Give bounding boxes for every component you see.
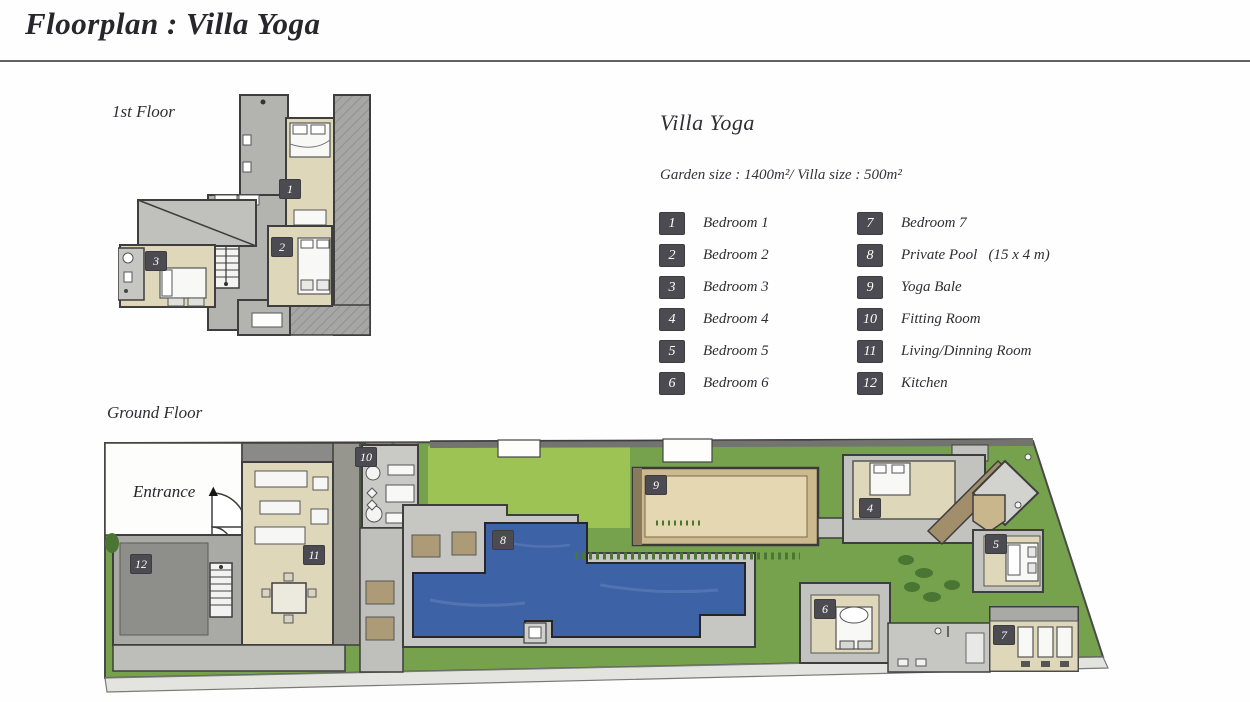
terrace [113,645,345,671]
legend-label: Bedroom 7 [901,215,967,232]
legend-badge: 5 [660,341,684,362]
room-badge-6: 6 [815,600,835,618]
entrance-text: Entrance [133,482,195,502]
side-table-icon [313,477,328,490]
page-title: Floorplan : Villa Yoga [25,6,321,42]
legend-item: 11Living/Dinning Room [858,341,1050,362]
legend-badge: 8 [858,245,882,266]
entrance-label: Entrance ▲ [133,482,221,502]
lounger-icon [366,581,394,604]
legend-column-1: 1Bedroom 1 2Bedroom 2 3Bedroom 3 4Bedroo… [660,213,820,394]
legend-item: 1Bedroom 1 [660,213,820,234]
room-badge-4: 4 [860,499,880,517]
window-icon [243,135,251,145]
side-deck [360,528,403,672]
bed-icon [1018,627,1033,657]
bench-icon [388,465,414,475]
lounger-icon [452,532,476,555]
size-line: Garden size : 1400m²/ Villa size : 500m² [660,167,1130,184]
ground-floor-label: Ground Floor [107,403,202,423]
wall-band [333,443,360,645]
legend-badge: 12 [858,373,882,394]
legend-label: Bedroom 1 [703,215,769,232]
shared-bathroom [888,623,990,672]
gate [663,439,712,462]
lamp-icon [261,100,266,105]
legend-label: Kitchen [901,375,948,392]
sink-icon [935,628,941,634]
info-panel: Villa Yoga Garden size : 1400m²/ Villa s… [660,110,1130,394]
floorplan-page: Floorplan : Villa Yoga 1st Floor Ground … [0,0,1250,702]
bench-icon [294,210,326,225]
bed-icon [1038,627,1053,657]
legend-item: 5Bedroom 5 [660,341,820,362]
shower-icon [966,633,984,663]
side-table-icon [311,509,328,524]
room-badge-11: 11 [304,546,324,564]
lounger-icon [366,617,394,640]
lounger-icon [412,535,440,557]
legend-badge: 4 [660,309,684,330]
toilet-icon [916,659,926,666]
dining-table-icon [272,583,306,613]
legend-label: Bedroom 5 [703,343,769,360]
legend-item: 7Bedroom 7 [858,213,1050,234]
room-badge-2: 2 [272,238,292,256]
first-floor-drawing [118,92,376,339]
legend-label: Bedroom 4 [703,311,769,328]
bedroom-6-room [800,583,890,663]
legend-item: 9Yoga Bale [858,277,1050,298]
room-badge-9: 9 [646,476,666,494]
sink-icon [123,253,133,263]
legend-label: Private Pool (15 x 4 m) [901,247,1050,264]
room-badge-5: 5 [986,535,1006,553]
legend-item: 2Bedroom 2 [660,245,820,266]
legend-label: Fitting Room [901,311,981,328]
toilet-icon [124,272,132,282]
bedroom-5-room [973,530,1043,592]
legend-badge: 2 [660,245,684,266]
room-badge-8: 8 [493,531,513,549]
ground-floor-plan: Entrance ▲ 4 5 6 7 8 9 10 11 12 [100,435,1115,697]
legend-column-2: 7Bedroom 7 8Private Pool (15 x 4 m) 9Yog… [858,213,1050,394]
legend-badge: 1 [660,213,684,234]
stairs-icon [210,563,232,617]
sink-icon [1025,454,1031,460]
bed-icon [1057,627,1072,657]
sloped-roof-area [138,200,256,246]
legend-label: Bedroom 6 [703,375,769,392]
sofa-icon [260,501,300,514]
sofa-icon [255,471,307,487]
legend-label: Bedroom 2 [703,247,769,264]
legend-badge: 11 [858,341,882,362]
legend-item: 12Kitchen [858,373,1050,394]
room-badge-3: 3 [146,252,166,270]
legend-item: 6Bedroom 6 [660,373,820,394]
room-badge-10: 10 [356,448,376,466]
legend-badge: 10 [858,309,882,330]
toilet-icon [898,659,908,666]
legend-item: 3Bedroom 3 [660,277,820,298]
room-badge-7: 7 [994,626,1014,644]
legend-label: Bedroom 3 [703,279,769,296]
entrance-arrow-icon: ▲ [205,483,221,501]
sofa-icon [255,527,305,544]
first-floor-plan: 1 2 3 [118,92,376,339]
legend-item: 8Private Pool (15 x 4 m) [858,245,1050,266]
legend: 1Bedroom 1 2Bedroom 2 3Bedroom 3 4Bedroo… [660,213,1130,394]
gate [498,440,540,457]
fixture [252,313,282,327]
legend-badge: 6 [660,373,684,394]
legend-label: Yoga Bale [901,279,962,296]
room-badge-12: 12 [131,555,151,573]
room-badge-1: 1 [280,180,300,198]
window-icon [243,162,251,172]
bathroom [118,248,144,300]
legend-item: 4Bedroom 4 [660,309,820,330]
table-icon [386,485,414,502]
legend-label: Living/Dinning Room [901,343,1031,360]
sink-icon [1015,502,1021,508]
header-divider [0,60,1250,62]
legend-badge: 9 [858,277,882,298]
villa-name: Villa Yoga [660,110,1130,136]
legend-badge: 3 [660,277,684,298]
roof-area [334,95,370,335]
stool-icon [366,466,380,480]
legend-item: 10Fitting Room [858,309,1050,330]
legend-badge: 7 [858,213,882,234]
ground-floor-drawing [100,435,1115,697]
